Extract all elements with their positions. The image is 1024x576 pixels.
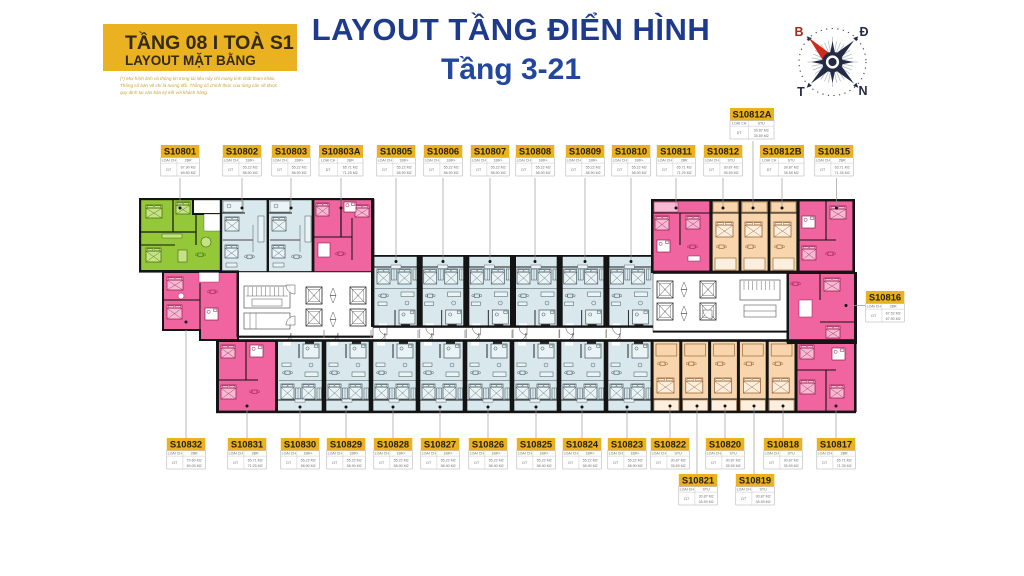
svg-text:S10818: S10818 bbox=[767, 439, 799, 450]
svg-text:LOẠI CH: LOẠI CH bbox=[658, 159, 673, 163]
svg-text:2BR: 2BR bbox=[185, 159, 192, 163]
svg-text:S10831: S10831 bbox=[231, 439, 263, 450]
svg-text:LOẠI CH: LOẠI CH bbox=[518, 452, 533, 456]
svg-text:STU: STU bbox=[788, 159, 796, 163]
svg-text:Tầng 3-21: Tầng 3-21 bbox=[441, 53, 581, 86]
svg-text:1BR+: 1BR+ bbox=[447, 159, 456, 163]
svg-text:58.90 M2: 58.90 M2 bbox=[628, 464, 643, 468]
svg-text:S10812: S10812 bbox=[707, 146, 739, 157]
svg-text:58.90 M2: 58.90 M2 bbox=[583, 464, 598, 468]
svg-text:S10832: S10832 bbox=[170, 439, 202, 450]
svg-text:LOẠI CH: LOẠI CH bbox=[470, 452, 485, 456]
svg-text:DT: DT bbox=[521, 168, 527, 172]
svg-text:2BR: 2BR bbox=[839, 159, 846, 163]
svg-text:DT: DT bbox=[474, 461, 480, 465]
svg-text:55.22 M2: 55.22 M2 bbox=[444, 165, 459, 169]
svg-text:S10811: S10811 bbox=[660, 146, 692, 157]
svg-text:LOẠI CH: LOẠI CH bbox=[707, 452, 722, 456]
svg-text:DT: DT bbox=[332, 461, 338, 465]
svg-text:S10820: S10820 bbox=[709, 439, 741, 450]
svg-text:LOẠI CH: LOẠI CH bbox=[422, 452, 437, 456]
svg-text:Thông số bản vẽ chỉ là tương đ: Thông số bản vẽ chỉ là tương đối. Thông … bbox=[120, 82, 278, 88]
svg-text:S10803: S10803 bbox=[275, 146, 307, 157]
svg-text:DT: DT bbox=[871, 314, 877, 318]
svg-text:2BR: 2BR bbox=[252, 452, 259, 456]
svg-text:58.90 M2: 58.90 M2 bbox=[632, 171, 647, 175]
svg-text:30.87 M2: 30.87 M2 bbox=[726, 458, 741, 462]
svg-text:55.22 M2: 55.22 M2 bbox=[583, 458, 598, 462]
svg-text:55.22 M2: 55.22 M2 bbox=[536, 165, 551, 169]
svg-text:STU: STU bbox=[675, 452, 683, 456]
svg-text:35.59 M2: 35.59 M2 bbox=[784, 464, 799, 468]
svg-text:S10806: S10806 bbox=[427, 146, 459, 157]
svg-text:1BR+: 1BR+ bbox=[492, 452, 501, 456]
svg-text:S10822: S10822 bbox=[654, 439, 686, 450]
svg-text:LOẠI CH: LOẠI CH bbox=[867, 305, 882, 309]
svg-text:S10825: S10825 bbox=[520, 439, 552, 450]
svg-text:35.59 M2: 35.59 M2 bbox=[754, 134, 769, 138]
svg-text:S10823: S10823 bbox=[611, 439, 643, 450]
svg-text:58.90 M2: 58.90 M2 bbox=[394, 464, 409, 468]
svg-text:1BR+: 1BR+ bbox=[539, 159, 548, 163]
svg-text:S10812A: S10812A bbox=[732, 109, 771, 120]
svg-text:80.05 M2: 80.05 M2 bbox=[187, 464, 202, 468]
svg-text:LOẠI CH: LOẠI CH bbox=[517, 159, 532, 163]
svg-text:58.90 M2: 58.90 M2 bbox=[489, 464, 504, 468]
svg-text:71.35 M2: 71.35 M2 bbox=[835, 171, 850, 175]
svg-text:DT: DT bbox=[286, 461, 292, 465]
svg-text:65.71 M2: 65.71 M2 bbox=[248, 458, 263, 462]
svg-text:DT: DT bbox=[820, 168, 826, 172]
svg-text:2BR: 2BR bbox=[191, 452, 198, 456]
svg-text:1BR+: 1BR+ bbox=[397, 452, 406, 456]
svg-text:LOẠI CH: LOẠI CH bbox=[273, 159, 288, 163]
svg-text:DT: DT bbox=[741, 497, 747, 501]
svg-text:S10824: S10824 bbox=[566, 439, 599, 450]
svg-text:69.80 M2: 69.80 M2 bbox=[181, 171, 196, 175]
svg-text:DT: DT bbox=[382, 168, 388, 172]
svg-text:30.87 M2: 30.87 M2 bbox=[754, 128, 769, 132]
svg-text:1BR+: 1BR+ bbox=[589, 159, 598, 163]
svg-text:LOẠI CH: LOẠI CH bbox=[375, 452, 390, 456]
svg-text:55.22 M2: 55.22 M2 bbox=[586, 165, 601, 169]
svg-text:LOẠI CH: LOẠI CH bbox=[472, 159, 487, 163]
svg-text:S10826: S10826 bbox=[472, 439, 504, 450]
svg-text:DT: DT bbox=[233, 461, 239, 465]
svg-text:2BR: 2BR bbox=[890, 305, 897, 309]
svg-text:DT: DT bbox=[429, 168, 435, 172]
svg-text:STU: STU bbox=[758, 122, 766, 126]
svg-text:DT: DT bbox=[822, 461, 828, 465]
svg-text:1BR+: 1BR+ bbox=[586, 452, 595, 456]
svg-text:71.25 M2: 71.25 M2 bbox=[677, 171, 692, 175]
svg-text:DT: DT bbox=[166, 168, 172, 172]
svg-text:LOẠI CH: LOẠI CH bbox=[425, 159, 440, 163]
svg-text:1BR+: 1BR+ bbox=[444, 452, 453, 456]
svg-text:S10817: S10817 bbox=[820, 439, 852, 450]
svg-text:55.22 M2: 55.22 M2 bbox=[243, 165, 258, 169]
svg-text:S10801: S10801 bbox=[164, 146, 196, 157]
svg-text:DT: DT bbox=[568, 461, 574, 465]
svg-text:71.25 M2: 71.25 M2 bbox=[248, 464, 263, 468]
svg-text:55.22 M2: 55.22 M2 bbox=[489, 458, 504, 462]
svg-text:30.87 M2: 30.87 M2 bbox=[724, 165, 739, 169]
svg-text:S10815: S10815 bbox=[818, 146, 850, 157]
svg-text:35.59 M2: 35.59 M2 bbox=[671, 464, 686, 468]
svg-text:LOẠI CH: LOẠI CH bbox=[162, 159, 177, 163]
svg-text:N: N bbox=[858, 84, 867, 98]
svg-text:LOẠI CH: LOẠI CH bbox=[328, 452, 343, 456]
svg-text:LAYOUT MẶT BẰNG: LAYOUT MẶT BẰNG bbox=[125, 53, 256, 68]
svg-text:58.90 M2: 58.90 M2 bbox=[491, 171, 506, 175]
svg-text:TẦNG 08 I TOÀ S1: TẦNG 08 I TOÀ S1 bbox=[125, 31, 294, 54]
svg-text:58.90 M2: 58.90 M2 bbox=[537, 464, 552, 468]
svg-text:DT: DT bbox=[571, 168, 577, 172]
svg-text:B: B bbox=[794, 25, 803, 39]
svg-text:DT: DT bbox=[277, 168, 283, 172]
svg-text:LOẠI CH: LOẠI CH bbox=[168, 452, 183, 456]
svg-text:DT: DT bbox=[656, 461, 662, 465]
svg-text:35.59 M2: 35.59 M2 bbox=[724, 171, 739, 175]
svg-text:STU: STU bbox=[703, 488, 711, 492]
svg-text:DT: DT bbox=[522, 461, 528, 465]
svg-text:S10829: S10829 bbox=[330, 439, 362, 450]
svg-text:67.90 M2: 67.90 M2 bbox=[886, 317, 901, 321]
svg-text:35.59 M2: 35.59 M2 bbox=[726, 464, 741, 468]
svg-text:55.22 M2: 55.22 M2 bbox=[394, 458, 409, 462]
svg-text:S10812B: S10812B bbox=[762, 146, 801, 157]
svg-text:T: T bbox=[797, 85, 805, 99]
svg-text:2BR: 2BR bbox=[681, 159, 688, 163]
svg-text:55.22 M2: 55.22 M2 bbox=[632, 165, 647, 169]
svg-text:S10808: S10808 bbox=[519, 146, 551, 157]
svg-text:DT: DT bbox=[711, 461, 717, 465]
svg-text:55.22 M2: 55.22 M2 bbox=[491, 165, 506, 169]
svg-text:Đ: Đ bbox=[859, 25, 868, 39]
svg-text:30.87 M2: 30.87 M2 bbox=[756, 494, 771, 498]
svg-text:LOẠI CH: LOẠI CH bbox=[229, 452, 244, 456]
svg-text:55.22 M2: 55.22 M2 bbox=[301, 458, 316, 462]
svg-text:35.59 M2: 35.59 M2 bbox=[756, 500, 771, 504]
svg-text:67.52 M2: 67.52 M2 bbox=[886, 311, 901, 315]
svg-text:1BR+: 1BR+ bbox=[350, 452, 359, 456]
svg-text:S10802: S10802 bbox=[226, 146, 258, 157]
svg-text:DT: DT bbox=[709, 168, 715, 172]
svg-text:DT: DT bbox=[476, 168, 482, 172]
svg-text:1BR+: 1BR+ bbox=[635, 159, 644, 163]
svg-text:65.71 M2: 65.71 M2 bbox=[677, 165, 692, 169]
svg-text:35.59 M2: 35.59 M2 bbox=[784, 171, 799, 175]
svg-text:58.90 M2: 58.90 M2 bbox=[441, 464, 456, 468]
svg-text:DT: DT bbox=[426, 461, 432, 465]
svg-text:DT: DT bbox=[684, 497, 690, 501]
svg-text:LOẠI CH: LOẠI CH bbox=[705, 159, 720, 163]
svg-text:30.87 M2: 30.87 M2 bbox=[784, 165, 799, 169]
svg-text:1BR+: 1BR+ bbox=[631, 452, 640, 456]
svg-text:S10807: S10807 bbox=[474, 146, 506, 157]
svg-text:S10816: S10816 bbox=[869, 292, 901, 303]
svg-text:2BR: 2BR bbox=[841, 452, 848, 456]
svg-text:DT: DT bbox=[326, 168, 332, 172]
svg-text:1BR+: 1BR+ bbox=[295, 159, 304, 163]
svg-text:LOẠI CH: LOẠI CH bbox=[609, 452, 624, 456]
svg-text:1BR+: 1BR+ bbox=[540, 452, 549, 456]
svg-text:LOẠI CH: LOẠI CH bbox=[762, 159, 777, 163]
svg-text:DT: DT bbox=[172, 461, 178, 465]
svg-text:LOẠI CH: LOẠI CH bbox=[378, 159, 393, 163]
svg-text:S10803A: S10803A bbox=[321, 146, 360, 157]
svg-text:35.59 M2: 35.59 M2 bbox=[699, 500, 714, 504]
svg-text:DT: DT bbox=[379, 461, 385, 465]
svg-text:70.60 M2: 70.60 M2 bbox=[187, 458, 202, 462]
svg-text:LOẠI CH: LOẠI CH bbox=[224, 159, 239, 163]
svg-text:55.22 M2: 55.22 M2 bbox=[537, 458, 552, 462]
svg-text:LOẠI CH: LOẠI CH bbox=[564, 452, 579, 456]
svg-text:S10810: S10810 bbox=[615, 146, 647, 157]
svg-text:1BR+: 1BR+ bbox=[304, 452, 313, 456]
svg-text:1BR+: 1BR+ bbox=[400, 159, 409, 163]
svg-text:65.71 M2: 65.71 M2 bbox=[837, 458, 852, 462]
svg-text:30.87 M2: 30.87 M2 bbox=[784, 458, 799, 462]
svg-text:30.87 M2: 30.87 M2 bbox=[671, 458, 686, 462]
svg-text:1BR+: 1BR+ bbox=[246, 159, 255, 163]
svg-text:LOẠI CH: LOẠI CH bbox=[652, 452, 667, 456]
svg-text:58.90 M2: 58.90 M2 bbox=[292, 171, 307, 175]
svg-text:LOẠI CH: LOẠI CH bbox=[765, 452, 780, 456]
svg-text:2BR: 2BR bbox=[347, 159, 354, 163]
svg-text:65.71 M2: 65.71 M2 bbox=[343, 165, 358, 169]
svg-text:58.90 M2: 58.90 M2 bbox=[243, 171, 258, 175]
svg-text:LOẠI CH: LOẠI CH bbox=[737, 488, 752, 492]
svg-text:58.90 M2: 58.90 M2 bbox=[586, 171, 601, 175]
svg-text:1BR+: 1BR+ bbox=[494, 159, 503, 163]
svg-text:LOẠI CH: LOẠI CH bbox=[816, 159, 831, 163]
svg-text:55.22 M2: 55.22 M2 bbox=[628, 458, 643, 462]
svg-text:(*) Mọi hình ảnh và thông tin: (*) Mọi hình ảnh và thông tin trong tài … bbox=[120, 75, 276, 81]
svg-text:67.90 M2: 67.90 M2 bbox=[181, 165, 196, 169]
svg-text:S10827: S10827 bbox=[424, 439, 456, 450]
svg-text:55.22 M2: 55.22 M2 bbox=[441, 458, 456, 462]
svg-text:DT: DT bbox=[769, 461, 775, 465]
svg-text:S10805: S10805 bbox=[380, 146, 412, 157]
svg-text:S10819: S10819 bbox=[739, 475, 771, 486]
svg-text:55.22 M2: 55.22 M2 bbox=[397, 165, 412, 169]
svg-text:LOẠI CH: LOẠI CH bbox=[567, 159, 582, 163]
svg-text:LOẠI CH: LOẠI CH bbox=[613, 159, 628, 163]
svg-text:58.90 M2: 58.90 M2 bbox=[347, 464, 362, 468]
svg-text:58.90 M2: 58.90 M2 bbox=[397, 171, 412, 175]
svg-text:DT: DT bbox=[767, 168, 773, 172]
svg-text:71.25 M2: 71.25 M2 bbox=[343, 171, 358, 175]
svg-text:55.22 M2: 55.22 M2 bbox=[347, 458, 362, 462]
svg-text:63.71 M2: 63.71 M2 bbox=[835, 165, 850, 169]
svg-text:STU: STU bbox=[730, 452, 738, 456]
svg-text:LOẠI CH: LOẠI CH bbox=[818, 452, 833, 456]
svg-text:S10809: S10809 bbox=[569, 146, 601, 157]
svg-text:S10830: S10830 bbox=[284, 439, 316, 450]
svg-text:STU: STU bbox=[760, 488, 768, 492]
svg-text:58.90 M2: 58.90 M2 bbox=[301, 464, 316, 468]
svg-text:71.35 M2: 71.35 M2 bbox=[837, 464, 852, 468]
svg-text:quy định tại văn bản ký kết vớ: quy định tại văn bản ký kết với khách hà… bbox=[120, 89, 208, 95]
svg-text:LAYOUT TẦNG ĐIỂN HÌNH: LAYOUT TẦNG ĐIỂN HÌNH bbox=[312, 12, 711, 47]
svg-text:LOẠI CH: LOẠI CH bbox=[321, 159, 336, 163]
svg-text:LOẠI CH: LOẠI CH bbox=[680, 488, 695, 492]
svg-text:LOẠI CH: LOẠI CH bbox=[732, 122, 747, 126]
svg-text:STU: STU bbox=[728, 159, 736, 163]
svg-text:S10828: S10828 bbox=[377, 439, 409, 450]
svg-text:30.87 M2: 30.87 M2 bbox=[699, 494, 714, 498]
svg-text:DT: DT bbox=[613, 461, 619, 465]
svg-text:55.22 M2: 55.22 M2 bbox=[292, 165, 307, 169]
svg-text:DT: DT bbox=[228, 168, 234, 172]
svg-text:S10821: S10821 bbox=[682, 475, 714, 486]
svg-text:DT: DT bbox=[662, 168, 668, 172]
svg-text:58.90 M2: 58.90 M2 bbox=[444, 171, 459, 175]
svg-text:LOẠI CH: LOẠI CH bbox=[282, 452, 297, 456]
svg-text:STU: STU bbox=[788, 452, 796, 456]
svg-text:DT: DT bbox=[617, 168, 623, 172]
svg-text:DT: DT bbox=[737, 131, 743, 135]
svg-text:58.90 M2: 58.90 M2 bbox=[536, 171, 551, 175]
